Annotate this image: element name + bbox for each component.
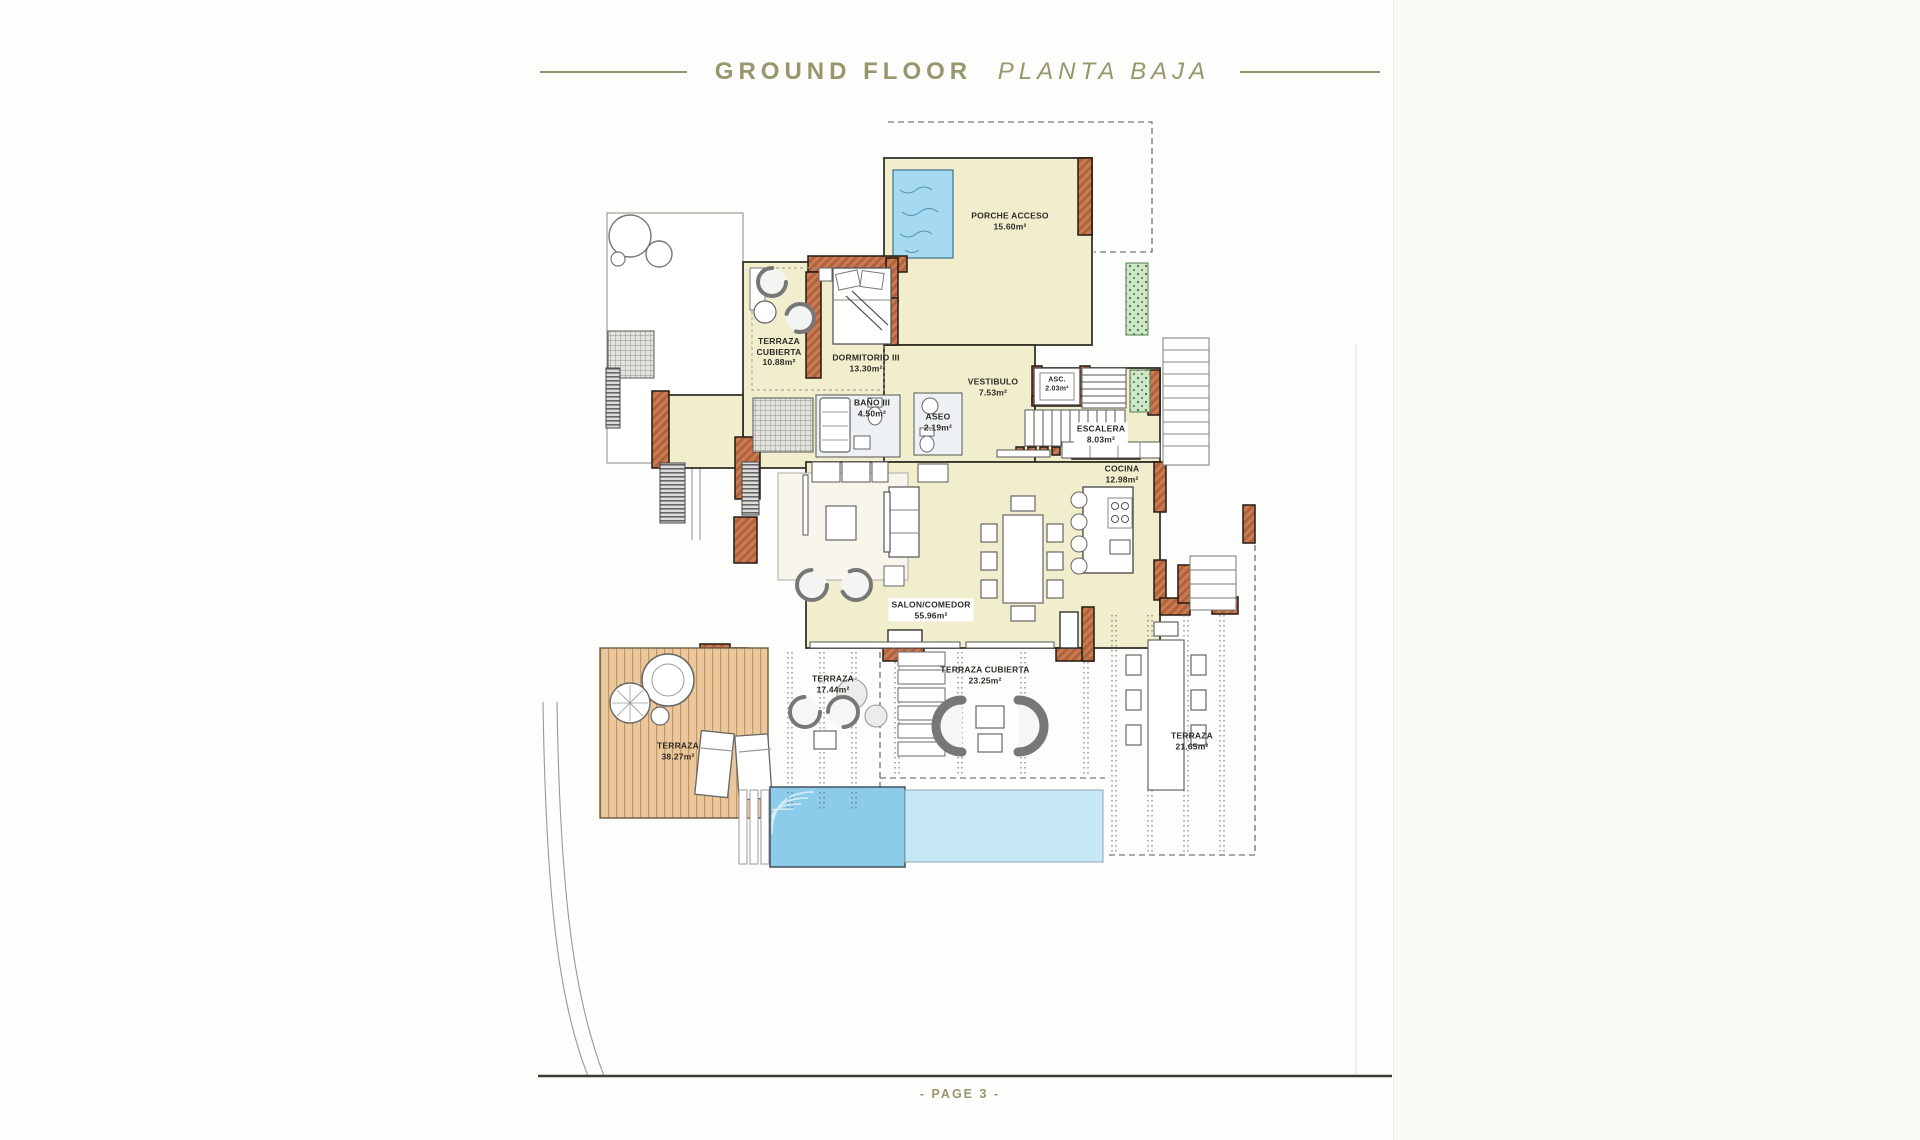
elevator-shaft — [1034, 368, 1080, 405]
outdoor-dining-table — [1148, 640, 1184, 790]
swimming-pool — [739, 787, 1103, 867]
armchair — [841, 570, 871, 600]
scanned-floor-plan-page: GROUND FLOOR PLANTA BAJA — [0, 0, 1920, 1140]
tree-icon — [609, 215, 651, 257]
bar-stool — [1071, 492, 1087, 508]
entrance-water-feature — [893, 170, 953, 258]
outdoor-table — [978, 734, 1002, 752]
covered-terrace-lounge — [936, 700, 1044, 752]
side-table — [884, 566, 904, 586]
grille-vent — [606, 368, 620, 428]
kitchen-sink — [1110, 540, 1130, 554]
terrace-table — [754, 301, 776, 323]
washbasin — [922, 398, 938, 414]
washbasin — [854, 436, 870, 449]
bathroom-fixtures — [753, 395, 900, 457]
armchair — [797, 570, 827, 600]
toilet — [920, 428, 934, 436]
aseo-fixtures — [914, 393, 962, 455]
dining-table — [1003, 515, 1043, 603]
bar-stool — [1071, 558, 1087, 574]
floor-plan-drawing — [0, 0, 1920, 1140]
bar-stool — [1071, 536, 1087, 552]
bathroom-floor — [660, 395, 743, 468]
toilet — [868, 398, 882, 407]
tree-icon — [646, 241, 672, 267]
kitchen-counter — [1062, 442, 1160, 458]
bar-stool — [1071, 514, 1087, 530]
coffee-table — [826, 506, 856, 540]
terrace-steps — [1190, 556, 1236, 610]
deck-side-table — [651, 707, 669, 725]
bathtub — [820, 398, 850, 452]
shower-tray — [753, 398, 813, 452]
floor-grilles — [660, 462, 759, 523]
outdoor-table — [814, 731, 836, 749]
exterior-staircase — [1163, 338, 1209, 465]
outdoor-table — [976, 706, 1004, 728]
outdoor-chair — [790, 697, 820, 727]
outdoor-chair — [828, 697, 858, 727]
page-footer: - PAGE 3 - — [0, 1087, 1920, 1101]
tree-icon — [611, 252, 625, 266]
tv-cabinet — [812, 462, 948, 482]
sofa — [884, 487, 919, 557]
nightstand — [819, 268, 832, 281]
console-table — [997, 450, 1050, 457]
bed — [833, 268, 891, 344]
